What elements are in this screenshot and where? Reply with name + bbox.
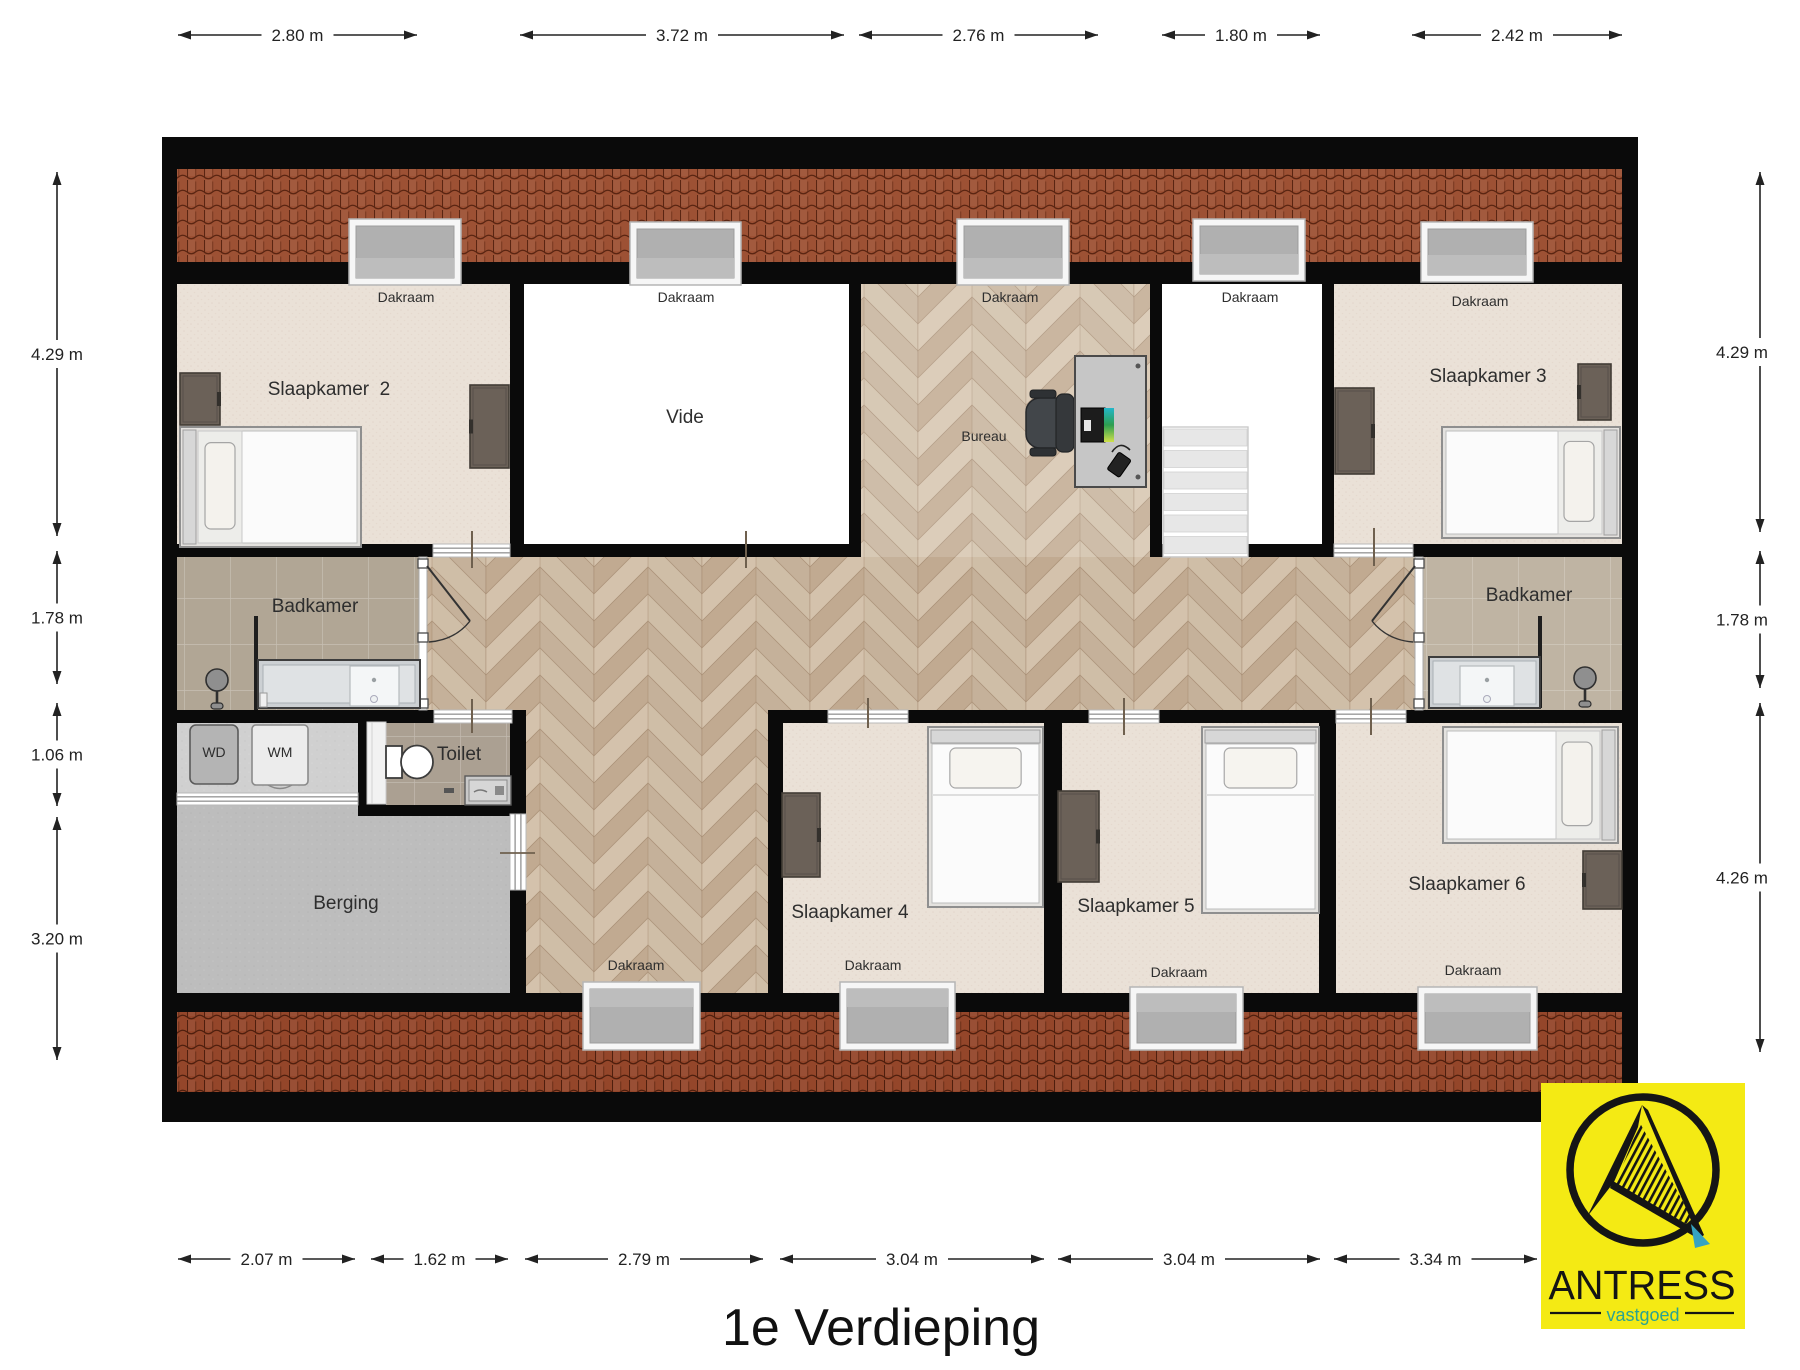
svg-text:1.78 m: 1.78 m [1716, 611, 1768, 630]
svg-text:4.29 m: 4.29 m [1716, 343, 1768, 362]
svg-text:3.20 m: 3.20 m [31, 930, 83, 949]
svg-text:Dakraam: Dakraam [982, 289, 1039, 305]
svg-text:Dakraam: Dakraam [1151, 964, 1208, 980]
svg-text:Slaapkamer 5: Slaapkamer 5 [1077, 896, 1194, 917]
svg-text:WM: WM [268, 744, 293, 760]
svg-text:2.80 m: 2.80 m [272, 26, 324, 45]
svg-text:4.29 m: 4.29 m [31, 345, 83, 364]
svg-text:Bureau: Bureau [961, 428, 1006, 444]
svg-text:2.07 m: 2.07 m [241, 1250, 293, 1269]
svg-text:2.76 m: 2.76 m [953, 26, 1005, 45]
svg-text:Dakraam: Dakraam [1222, 289, 1279, 305]
svg-text:1e Verdieping: 1e Verdieping [722, 1299, 1040, 1357]
svg-text:Dakraam: Dakraam [1445, 962, 1502, 978]
svg-text:vastgoed: vastgoed [1606, 1305, 1679, 1325]
svg-text:Badkamer: Badkamer [1486, 585, 1573, 606]
svg-text:Dakraam: Dakraam [845, 957, 902, 973]
svg-text:ANTRESS: ANTRESS [1549, 1262, 1736, 1308]
svg-text:3.04 m: 3.04 m [1163, 1250, 1215, 1269]
svg-text:Vide: Vide [666, 407, 704, 428]
svg-text:Slaapkamer 3: Slaapkamer 3 [1429, 366, 1546, 387]
svg-text:3.72 m: 3.72 m [656, 26, 708, 45]
svg-text:1.06 m: 1.06 m [31, 746, 83, 765]
svg-text:Slaapkamer 6: Slaapkamer 6 [1408, 874, 1525, 895]
svg-text:Dakraam: Dakraam [658, 289, 715, 305]
svg-text:Dakraam: Dakraam [378, 289, 435, 305]
svg-text:Slaapkamer 2: Slaapkamer 2 [268, 379, 391, 400]
svg-text:Dakraam: Dakraam [608, 957, 665, 973]
svg-text:Slaapkamer 4: Slaapkamer 4 [791, 902, 909, 923]
svg-text:Berging: Berging [313, 893, 379, 914]
svg-text:1.78 m: 1.78 m [31, 609, 83, 628]
svg-text:4.26 m: 4.26 m [1716, 869, 1768, 888]
svg-text:3.04 m: 3.04 m [886, 1250, 938, 1269]
svg-text:2.42 m: 2.42 m [1491, 26, 1543, 45]
svg-text:Badkamer: Badkamer [272, 596, 359, 617]
svg-text:Dakraam: Dakraam [1452, 293, 1509, 309]
svg-text:1.80 m: 1.80 m [1215, 26, 1267, 45]
svg-text:3.34 m: 3.34 m [1410, 1250, 1462, 1269]
svg-text:1.62 m: 1.62 m [414, 1250, 466, 1269]
svg-text:WD: WD [202, 744, 225, 760]
svg-text:2.79 m: 2.79 m [618, 1250, 670, 1269]
svg-text:Toilet: Toilet [437, 744, 482, 765]
